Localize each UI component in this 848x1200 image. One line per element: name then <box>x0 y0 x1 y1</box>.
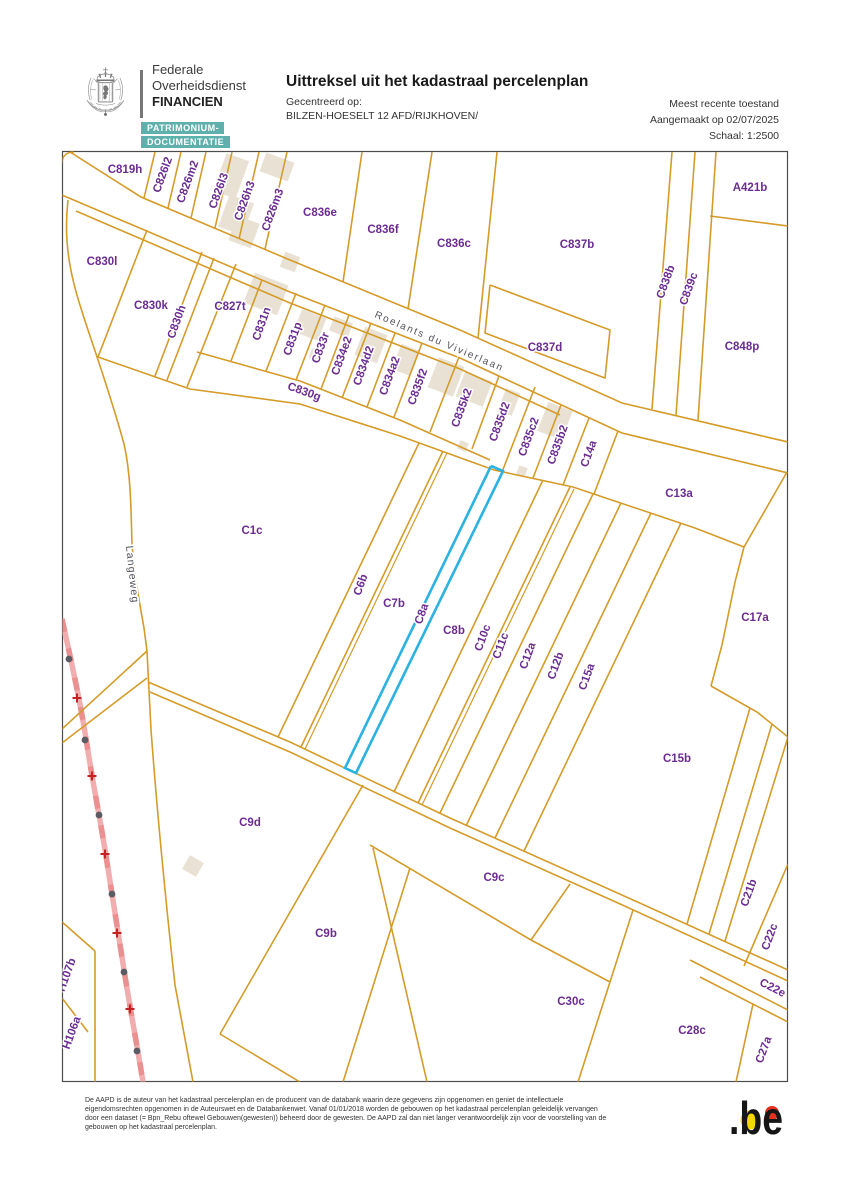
svg-text:C13a: C13a <box>665 488 693 500</box>
svg-text:C14a: C14a <box>579 438 600 469</box>
svg-text:C21b: C21b <box>739 878 760 909</box>
svg-text:C837d: C837d <box>528 342 563 354</box>
svg-text:C830l: C830l <box>87 256 118 268</box>
svg-text:C819h: C819h <box>108 164 143 176</box>
svg-text:C834d2: C834d2 <box>352 345 377 388</box>
svg-text:C830g: C830g <box>286 381 323 404</box>
svg-text:C9b: C9b <box>315 928 337 940</box>
svg-text:C836f: C836f <box>367 224 398 236</box>
svg-text:C836e: C836e <box>303 207 337 219</box>
svg-text:C835d2: C835d2 <box>488 401 513 444</box>
svg-text:C848p: C848p <box>725 341 760 353</box>
svg-text:H106a: H106a <box>61 1014 84 1051</box>
svg-text:C30c: C30c <box>557 996 585 1008</box>
svg-text:C27a: C27a <box>754 1034 775 1065</box>
svg-text:C826l2: C826l2 <box>151 155 175 194</box>
svg-text:C1c: C1c <box>241 525 263 537</box>
svg-text:C836c: C836c <box>437 238 471 250</box>
svg-text:C28c: C28c <box>678 1025 706 1037</box>
svg-text:C838b: C838b <box>655 264 678 301</box>
svg-text:C7b: C7b <box>383 598 405 610</box>
svg-text:C15a: C15a <box>577 661 598 692</box>
svg-text:C834a2: C834a2 <box>378 355 403 397</box>
svg-text:C15b: C15b <box>663 753 691 765</box>
svg-text:C826m2: C826m2 <box>175 159 201 205</box>
svg-text:C17a: C17a <box>741 612 769 624</box>
svg-text:C835c2: C835c2 <box>517 416 542 458</box>
svg-text:C9c: C9c <box>483 872 505 884</box>
svg-text:H107b: H107b <box>56 957 79 994</box>
svg-text:A421b: A421b <box>733 182 768 194</box>
svg-text:C12b: C12b <box>546 651 567 682</box>
svg-text:C839c: C839c <box>678 270 701 307</box>
svg-text:C830k: C830k <box>134 300 168 312</box>
svg-text:Langeweg: Langeweg <box>123 545 141 604</box>
svg-text:C10c: C10c <box>473 622 494 653</box>
svg-text:C22c: C22c <box>760 921 781 952</box>
svg-text:C826m3: C826m3 <box>260 187 286 233</box>
svg-text:C11c: C11c <box>491 631 512 661</box>
svg-text:C9d: C9d <box>239 817 261 829</box>
svg-text:C8b: C8b <box>443 625 465 637</box>
svg-text:.be: .be <box>729 1092 783 1144</box>
svg-text:C837b: C837b <box>560 239 595 251</box>
svg-text:C831n: C831n <box>251 306 274 343</box>
svg-text:C827t: C827t <box>214 301 245 313</box>
svg-text:C831p: C831p <box>282 321 305 358</box>
